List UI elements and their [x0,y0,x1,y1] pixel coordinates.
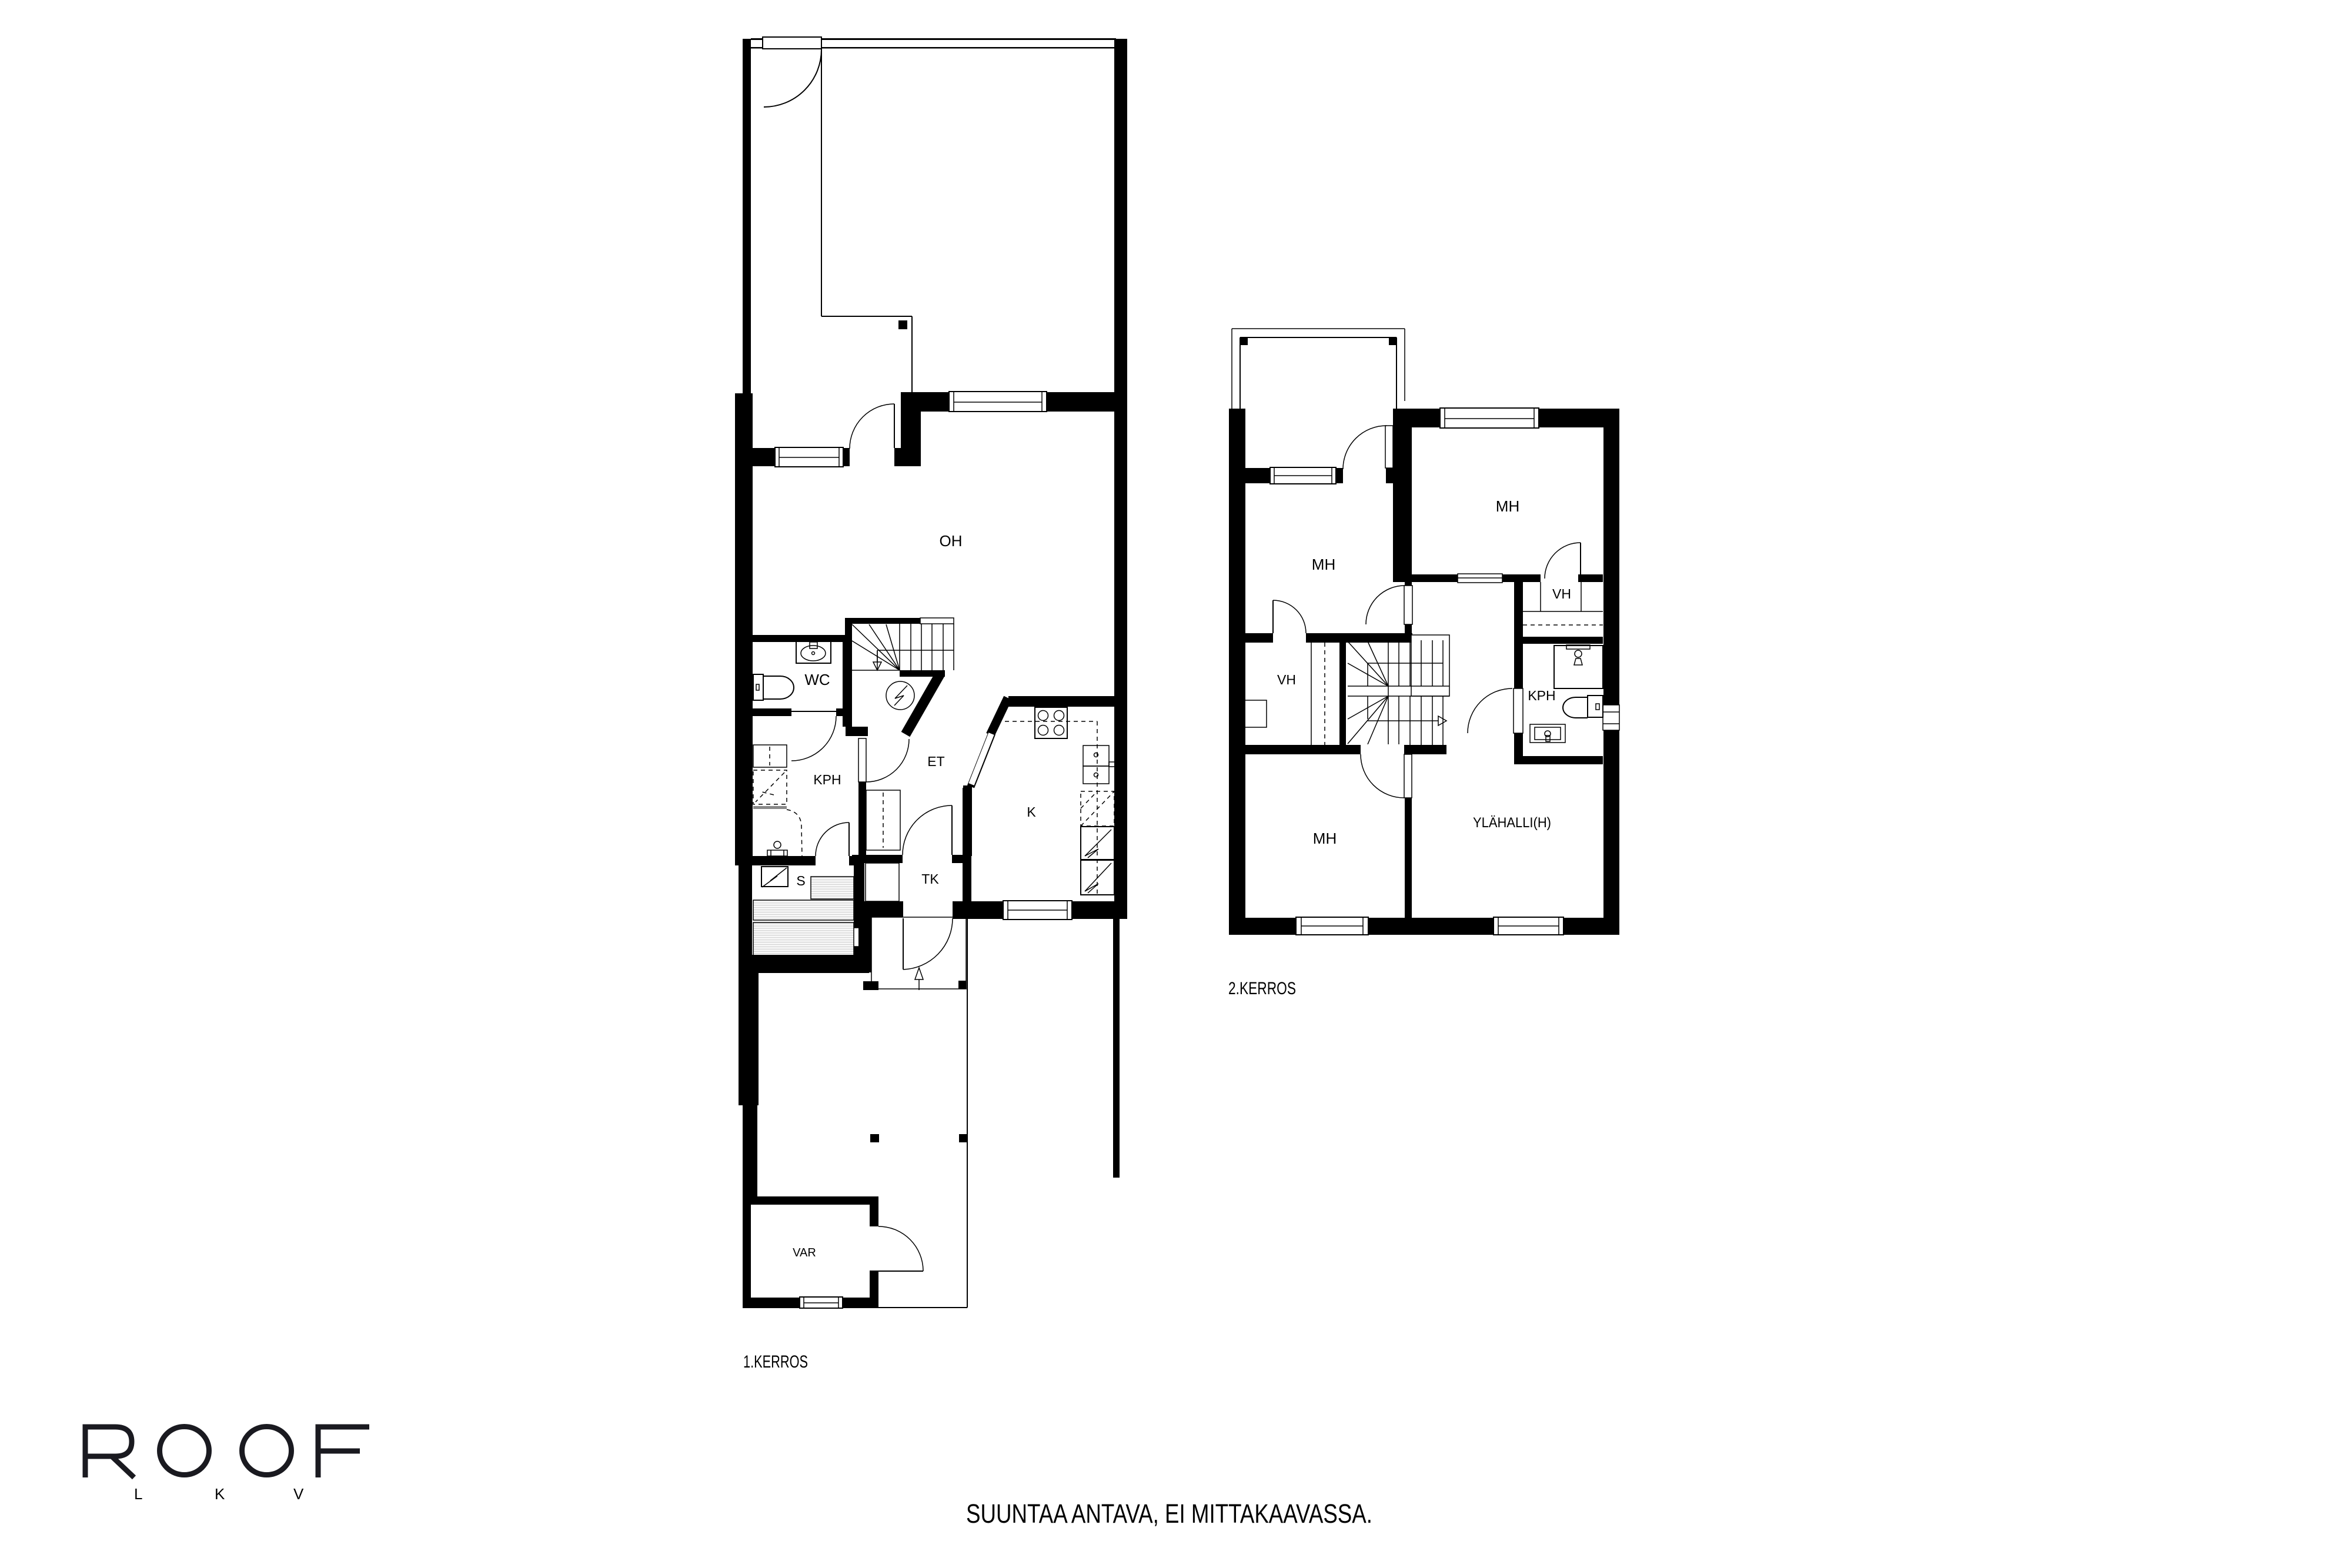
svg-text:VH: VH [1277,672,1296,687]
svg-text:MH: MH [1312,556,1335,573]
svg-text:YLÄHALLI(H): YLÄHALLI(H) [1473,815,1551,831]
svg-text:K: K [215,1485,226,1503]
svg-text:TK: TK [921,871,939,887]
svg-text:ET: ET [927,754,944,769]
svg-text:V: V [293,1485,305,1503]
svg-text:S: S [796,873,805,888]
svg-text:VAR: VAR [793,1246,816,1259]
svg-text:KPH: KPH [813,772,841,787]
svg-text:L: L [134,1485,143,1503]
svg-text:KPH: KPH [1528,688,1555,703]
svg-text:2.KERROS: 2.KERROS [1228,979,1296,998]
svg-text:VH: VH [1552,586,1571,601]
svg-text:WC: WC [804,671,830,688]
svg-text:OH: OH [940,532,963,550]
svg-text:SUUNTAA ANTAVA, EI MITTAKAAVAS: SUUNTAA ANTAVA, EI MITTAKAAVASSA. [966,1499,1372,1529]
svg-text:MH: MH [1313,830,1337,847]
svg-text:MH: MH [1496,497,1519,515]
svg-text:1.KERROS: 1.KERROS [743,1352,808,1372]
svg-text:K: K [1027,804,1036,820]
